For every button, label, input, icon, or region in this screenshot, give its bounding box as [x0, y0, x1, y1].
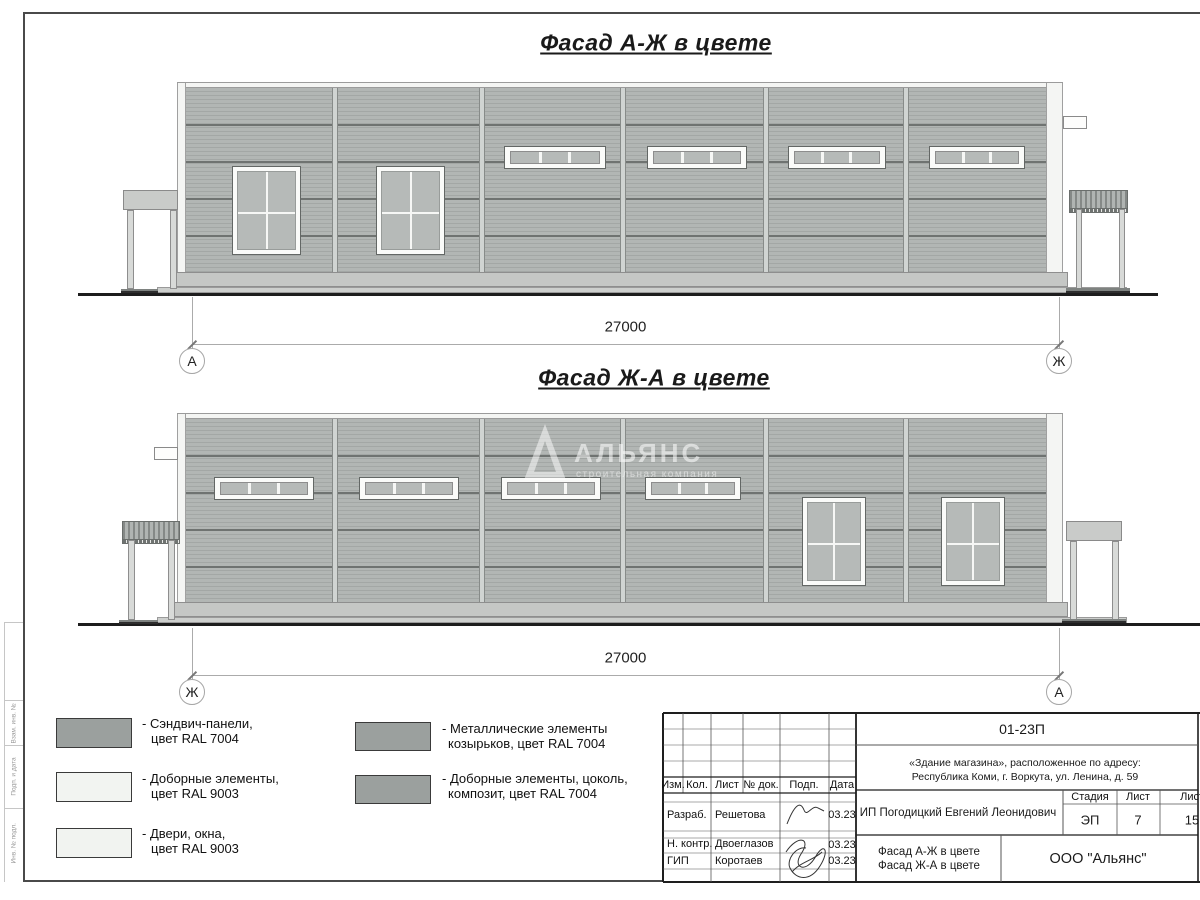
frame-bottom-line: [23, 880, 663, 882]
strip-window-divider: [821, 152, 824, 163]
window-mullion-vertical: [410, 172, 412, 249]
project-address-line2: Республика Коми, г. Воркута, ул. Ленина,…: [912, 771, 1139, 783]
window-mullion-vertical: [833, 503, 835, 580]
row-name: Двоеглазов: [715, 838, 773, 850]
sheets-label: Листов: [1180, 791, 1200, 803]
col-list: Лист: [715, 779, 739, 791]
drawing-sheet: Взам. инв. № Подп. и дата Инв. № подл. Ф…: [0, 0, 1200, 900]
frame-left-line: [23, 12, 25, 882]
facade-wall: [186, 87, 1046, 272]
window-strip: [647, 146, 747, 169]
strip-window-panes: [794, 151, 880, 164]
corner-trim-left: [177, 83, 186, 287]
window-pane: [807, 502, 861, 581]
sheet-value: 7: [1134, 813, 1141, 828]
facade-1-title: Фасад А-Ж в цвете: [540, 30, 772, 57]
canopy-post: [1070, 541, 1077, 621]
legend-label: - Доборные элементы, цоколь,: [442, 771, 628, 786]
company-name: ООО "Альянс": [1050, 851, 1147, 867]
panel-seam: [186, 566, 1046, 568]
window-strip: [214, 477, 314, 500]
window-strip: [929, 146, 1025, 169]
legend-swatch-sandwich: [56, 718, 132, 748]
margin-label-vzam: Взам. инв. №: [11, 704, 18, 744]
panel-seam: [186, 492, 1046, 494]
window-mullion-vertical: [266, 172, 268, 249]
legend-label: - Доборные элементы,: [142, 771, 279, 786]
canopy-base: [119, 620, 158, 624]
axis-marker-left: А: [179, 348, 205, 374]
stage-label: Стадия: [1071, 791, 1109, 803]
legend-swatch-doors: [56, 828, 132, 858]
panel-seam: [186, 455, 1046, 457]
client-name: ИП Погодицкий Евгений Леонидович: [860, 807, 1057, 819]
strip-window-divider: [248, 483, 251, 494]
panel-joint: [903, 418, 909, 602]
window-pane: [237, 171, 296, 250]
canopy-fascia: [123, 190, 178, 210]
plinth-band: [172, 602, 1068, 617]
sheets-value: 15: [1185, 813, 1199, 828]
doc-number: 01-23П: [999, 721, 1045, 737]
strip-window-divider: [535, 483, 538, 494]
margin-label-podp: Подп. и дата: [11, 757, 18, 797]
legend-label: композит, цвет RAL 7004: [448, 786, 597, 801]
row-date: 03.23: [828, 809, 856, 821]
window-strip: [504, 146, 606, 169]
legend-label: - Сэндвич-панели,: [142, 716, 253, 731]
window-strip: [501, 477, 601, 500]
margin-line: [4, 700, 23, 701]
panel-joint: [620, 418, 626, 602]
panel-joint: [332, 87, 338, 272]
window-pane: [381, 171, 440, 250]
legend-swatch-plinth: [355, 775, 431, 804]
strip-window-divider: [539, 152, 542, 163]
sheet-label: Лист: [1126, 791, 1150, 803]
margin-label-inv: Инв. № подл.: [11, 824, 18, 864]
strip-window-divider: [393, 483, 396, 494]
window-large: [802, 497, 866, 586]
canopy-base: [1066, 288, 1130, 293]
legend-label: козырьков, цвет RAL 7004: [448, 736, 605, 751]
canopy-post: [1076, 209, 1082, 289]
legend-label: цвет RAL 9003: [151, 841, 239, 856]
canopy-base: [121, 289, 158, 293]
window-mullion-horizontal: [382, 212, 439, 214]
row-role: Н. контр.: [667, 838, 712, 850]
corner-trim-right: [1046, 83, 1063, 287]
canopy-base: [1062, 619, 1126, 623]
strip-window-panes: [365, 482, 453, 495]
strip-window-panes: [507, 482, 595, 495]
legend-label: - Металлические элементы: [442, 721, 607, 736]
legend-label: цвет RAL 9003: [151, 786, 239, 801]
frame-top-line: [23, 12, 1200, 14]
dimension-value: 27000: [605, 650, 647, 667]
facade-wall: [186, 418, 1046, 602]
facade-2-title: Фасад Ж-А в цвете: [538, 365, 770, 392]
row-date: 03.23: [828, 839, 856, 851]
col-doc: № док.: [743, 779, 778, 791]
col-kol: Кол.: [686, 779, 708, 791]
panel-joint: [903, 87, 909, 272]
strip-window-panes: [510, 151, 600, 164]
drawing-title-line1: Фасад А-Ж в цвете: [878, 846, 980, 858]
strip-window-divider: [681, 152, 684, 163]
col-podp: Подп.: [789, 779, 818, 791]
panel-joint: [763, 418, 769, 602]
margin-line: [4, 808, 23, 809]
strip-window-panes: [653, 151, 741, 164]
legend-swatch-canopy-metal: [355, 722, 431, 751]
window-mullion-horizontal: [238, 212, 295, 214]
strip-window-divider: [710, 152, 713, 163]
panel-joint: [620, 87, 626, 272]
canopy-fascia: [1069, 190, 1128, 209]
row-name: Коротаев: [715, 855, 763, 867]
canopy-post: [1112, 541, 1119, 621]
window-mullion-vertical: [972, 503, 974, 580]
legend-label: цвет RAL 7004: [151, 731, 239, 746]
window-large: [376, 166, 445, 255]
legend-label: - Двери, окна,: [142, 826, 225, 841]
strip-window-divider: [564, 483, 567, 494]
strip-window-panes: [220, 482, 308, 495]
panel-joint: [763, 87, 769, 272]
stage-value: ЭП: [1081, 813, 1100, 828]
canopy-post: [168, 540, 175, 620]
roof-pipe: [154, 447, 178, 460]
axis-marker-right: Ж: [1046, 348, 1072, 374]
canopy-fascia: [1066, 521, 1122, 541]
parapet-flashing: [177, 82, 1063, 88]
corner-trim-right: [1046, 414, 1063, 617]
panel-seam: [186, 235, 1046, 237]
col-izm: Изм.: [661, 779, 685, 791]
window-pane: [946, 502, 1000, 581]
row-date: 03.23: [828, 855, 856, 867]
window-large: [941, 497, 1005, 586]
row-role: Разраб.: [667, 809, 707, 821]
strip-window-divider: [568, 152, 571, 163]
strip-window-panes: [935, 151, 1019, 164]
margin-line: [4, 622, 23, 623]
axis-marker-right: А: [1046, 679, 1072, 705]
panel-seam: [186, 529, 1046, 531]
canopy-post: [170, 210, 177, 289]
row-name: Решетова: [715, 809, 765, 821]
ground-line: [78, 623, 1200, 626]
window-mullion-horizontal: [947, 543, 999, 545]
panel-joint: [332, 418, 338, 602]
dimension-value: 27000: [605, 319, 647, 336]
strip-window-divider: [989, 152, 992, 163]
row-role: ГИП: [667, 855, 689, 867]
panel-seam: [186, 161, 1046, 163]
parapet-flashing: [177, 413, 1063, 419]
strip-window-divider: [849, 152, 852, 163]
canopy-post: [1119, 209, 1125, 289]
strip-window-panes: [651, 482, 735, 495]
drawing-title-line2: Фасад Ж-А в цвете: [878, 860, 980, 872]
panel-seam: [186, 124, 1046, 126]
legend-swatch-dobor: [56, 772, 132, 802]
panel-joint: [479, 87, 485, 272]
corner-trim-left: [177, 414, 186, 617]
strip-window-divider: [705, 483, 708, 494]
window-mullion-horizontal: [808, 543, 860, 545]
window-strip: [788, 146, 886, 169]
canopy-fascia: [122, 521, 180, 540]
canopy-post: [128, 540, 135, 620]
strip-window-divider: [422, 483, 425, 494]
ground-line: [78, 293, 1158, 296]
strip-window-divider: [962, 152, 965, 163]
strip-window-divider: [277, 483, 280, 494]
col-data: Дата: [830, 779, 854, 791]
canopy-post: [127, 210, 134, 289]
panel-joint: [479, 418, 485, 602]
window-strip: [359, 477, 459, 500]
roof-pipe: [1063, 116, 1087, 129]
plinth-band: [172, 272, 1068, 287]
dimension-line: [192, 675, 1059, 676]
axis-marker-left: Ж: [179, 679, 205, 705]
project-address-line1: «Здание магазина», расположенное по адре…: [909, 757, 1141, 769]
panel-seam: [186, 198, 1046, 200]
window-strip: [645, 477, 741, 500]
margin-line: [4, 745, 23, 746]
strip-window-divider: [678, 483, 681, 494]
window-large: [232, 166, 301, 255]
dimension-line: [192, 344, 1059, 345]
